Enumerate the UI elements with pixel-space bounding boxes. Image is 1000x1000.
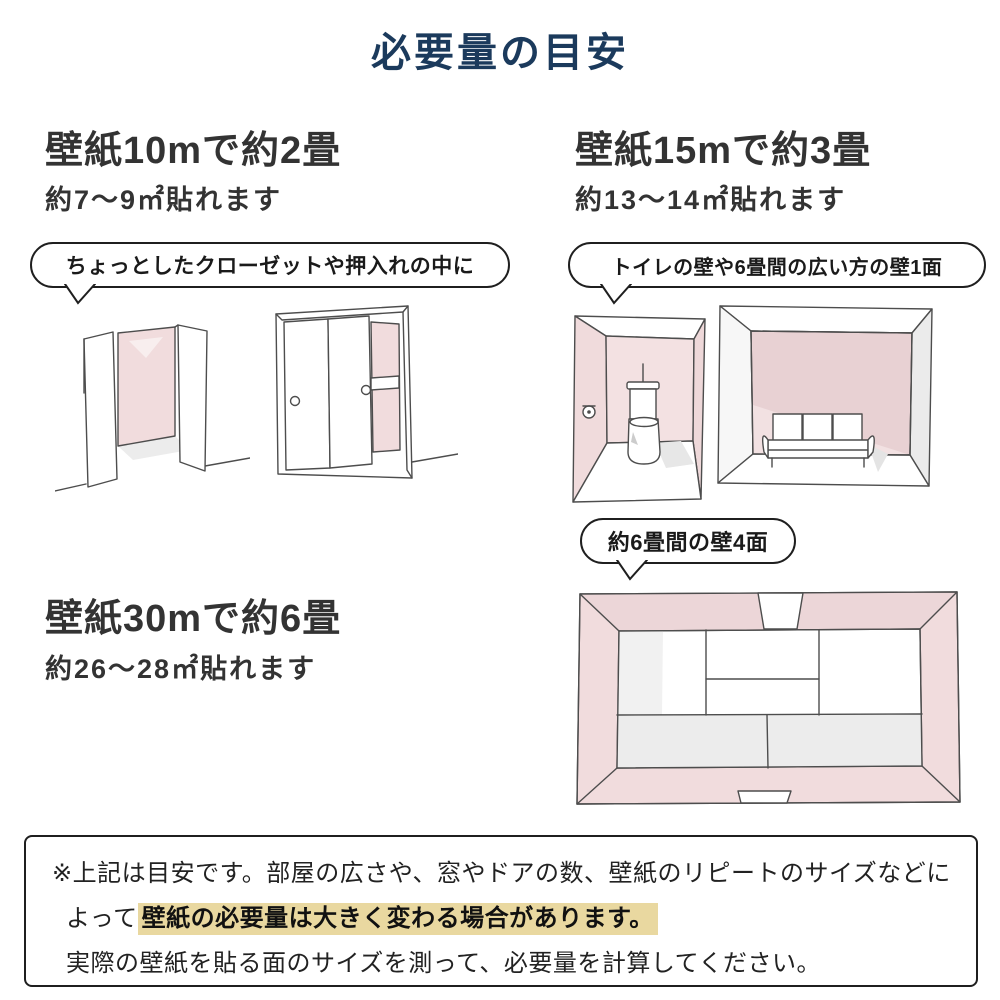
bubble-tail-icon xyxy=(614,560,650,582)
section-10m-heading: 壁紙10mで約2畳 xyxy=(45,128,341,174)
section-30m-heading: 壁紙30mで約6畳 xyxy=(45,596,341,642)
note-text-2-highlight: 壁紙の必要量は大きく変わる場合があります。 xyxy=(138,903,658,935)
page-title: 必要量の目安 xyxy=(0,30,1000,76)
section-30m-subtitle: 約26〜28㎡貼れます xyxy=(45,652,316,686)
toilet-room-illustration xyxy=(567,302,713,508)
note-line-3: 実際の壁紙を貼る面のサイズを測って、必要量を計算してください。 xyxy=(52,941,950,986)
note-text-1: ※上記は目安です。部屋の広さや、窓やドアの数、壁紙のリピートのサイズなどに xyxy=(52,860,951,887)
section-10m-subtitle: 約7〜9㎡貼れます xyxy=(45,183,282,217)
note-box: ※上記は目安です。部屋の広さや、窓やドアの数、壁紙のリピートのサイズなどに よっ… xyxy=(24,835,978,987)
bubble-tail-icon xyxy=(598,284,634,306)
sliding-closet-illustration xyxy=(268,300,458,500)
sofa-room-illustration xyxy=(716,302,936,490)
section-15m-subtitle: 約13〜14㎡貼れます xyxy=(575,183,846,217)
section-30m-bubble: 約6畳間の壁4面 xyxy=(580,518,796,564)
section-10m-bubble: ちょっとしたクローゼットや押入れの中に xyxy=(30,242,510,288)
note-line-1: ※上記は目安です。部屋の広さや、窓やドアの数、壁紙のリピートのサイズなどに xyxy=(52,851,950,896)
note-text-3: 実際の壁紙を貼る面のサイズを測って、必要量を計算してください。 xyxy=(66,950,821,977)
section-15m-heading: 壁紙15mで約3畳 xyxy=(575,128,871,174)
open-closet-illustration xyxy=(55,303,250,513)
note-line-2: よって壁紙の必要量は大きく変わる場合があります。 xyxy=(52,896,950,941)
section-15m-bubble: トイレの壁や6畳間の広い方の壁1面 xyxy=(568,242,986,288)
tatami-room-illustration xyxy=(570,582,968,814)
wallpaper-amount-guide: 必要量の目安 壁紙10mで約2畳 約7〜9㎡貼れます ちょっとしたクローゼットや… xyxy=(0,0,1000,1000)
note-text-2-prefix: よって xyxy=(66,905,138,932)
bubble-tail-icon xyxy=(62,284,98,306)
